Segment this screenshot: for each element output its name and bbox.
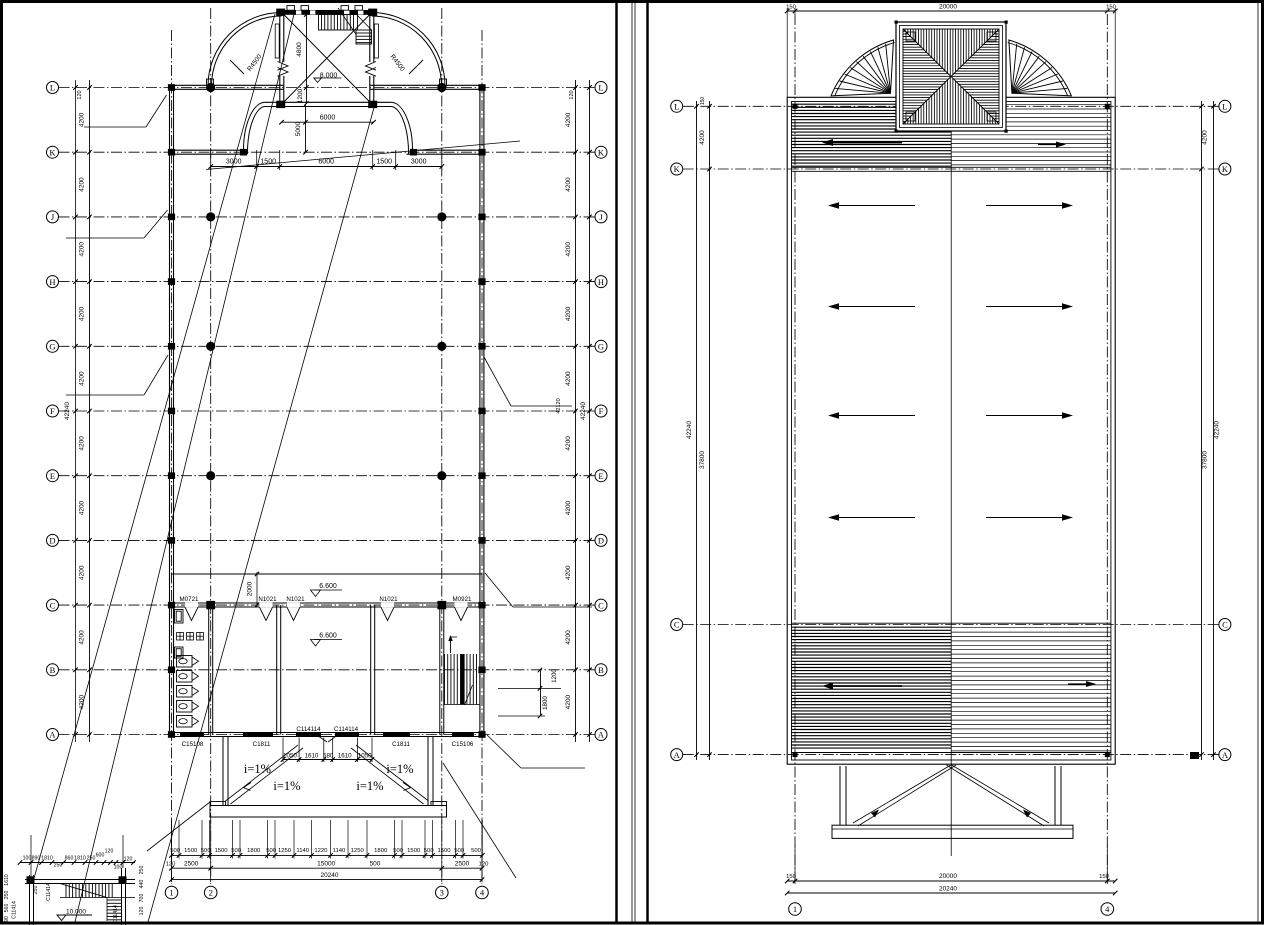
svg-text:37800: 37800	[699, 451, 706, 469]
svg-text:F: F	[599, 406, 604, 416]
svg-text:4200: 4200	[79, 565, 86, 580]
svg-text:4200: 4200	[565, 500, 572, 515]
svg-text:150: 150	[786, 5, 797, 11]
svg-text:1800: 1800	[542, 696, 549, 710]
svg-text:90: 90	[4, 916, 10, 922]
svg-text:500: 500	[424, 848, 435, 854]
svg-text:1800: 1800	[374, 848, 388, 854]
svg-text:580: 580	[323, 753, 334, 760]
svg-text:500: 500	[471, 848, 482, 854]
svg-text:M0721: M0721	[180, 596, 199, 603]
svg-text:120: 120	[139, 907, 145, 916]
svg-text:B: B	[598, 665, 604, 675]
svg-text:E: E	[598, 471, 603, 481]
svg-text:5000: 5000	[295, 121, 302, 136]
svg-text:4200: 4200	[565, 565, 572, 580]
svg-text:L: L	[50, 83, 55, 93]
svg-text:3: 3	[440, 888, 444, 898]
svg-text:250: 250	[54, 863, 63, 869]
svg-text:C1811: C1811	[253, 741, 271, 748]
svg-text:42240: 42240	[580, 402, 587, 420]
svg-text:500: 500	[454, 848, 465, 854]
svg-text:8.000: 8.000	[320, 73, 338, 80]
svg-text:100: 100	[23, 856, 32, 862]
svg-text:A: A	[598, 730, 605, 740]
svg-text:A: A	[1222, 750, 1229, 760]
svg-text:L: L	[674, 102, 679, 112]
svg-text:C114114: C114114	[296, 726, 321, 733]
svg-text:1250: 1250	[278, 848, 292, 854]
svg-text:560: 560	[4, 904, 10, 913]
svg-text:i=1%: i=1%	[244, 762, 271, 776]
svg-text:1500: 1500	[437, 848, 451, 854]
svg-text:440: 440	[139, 880, 145, 889]
svg-text:2500: 2500	[184, 861, 199, 868]
svg-text:120: 120	[124, 857, 133, 863]
svg-text:K: K	[674, 164, 681, 174]
svg-text:4200: 4200	[565, 436, 572, 451]
svg-text:4200: 4200	[565, 242, 572, 257]
svg-text:H: H	[598, 277, 604, 287]
svg-text:150: 150	[1106, 5, 1117, 11]
svg-text:2500: 2500	[455, 861, 470, 868]
svg-text:120: 120	[105, 849, 114, 855]
svg-text:120: 120	[166, 862, 177, 868]
svg-text:150: 150	[1099, 874, 1110, 880]
svg-text:K: K	[49, 147, 56, 157]
svg-text:1610: 1610	[4, 874, 10, 886]
svg-text:4200: 4200	[565, 695, 572, 710]
svg-text:500: 500	[370, 861, 381, 868]
svg-text:42240: 42240	[686, 421, 693, 439]
svg-text:C11414: C11414	[46, 883, 52, 901]
svg-text:120: 120	[479, 862, 490, 868]
svg-text:4200: 4200	[1202, 130, 1209, 145]
svg-text:A: A	[674, 750, 681, 760]
svg-text:4200: 4200	[565, 177, 572, 192]
svg-text:4: 4	[1105, 904, 1110, 914]
svg-text:4200: 4200	[79, 371, 86, 386]
svg-text:6.600: 6.600	[319, 633, 337, 640]
svg-text:4200: 4200	[565, 630, 572, 645]
svg-text:G: G	[49, 342, 55, 352]
svg-text:500: 500	[393, 848, 404, 854]
svg-text:1140: 1140	[333, 848, 346, 854]
svg-text:i=1%: i=1%	[356, 779, 383, 793]
svg-text:K: K	[1222, 164, 1229, 174]
svg-text:4800: 4800	[296, 42, 303, 57]
svg-text:860: 860	[65, 856, 74, 862]
svg-text:D: D	[598, 536, 604, 546]
svg-text:37800: 37800	[1202, 451, 1209, 469]
svg-text:A: A	[49, 730, 56, 740]
svg-text:20240: 20240	[939, 886, 957, 893]
svg-text:i=1%: i=1%	[386, 762, 413, 776]
svg-text:4200: 4200	[79, 112, 86, 127]
svg-text:4200: 4200	[79, 630, 86, 645]
svg-text:1500: 1500	[376, 159, 392, 166]
svg-text:3000: 3000	[411, 159, 427, 166]
svg-text:150: 150	[786, 874, 797, 880]
svg-text:500: 500	[231, 848, 242, 854]
svg-text:1800: 1800	[247, 848, 261, 854]
svg-text:890: 890	[32, 856, 41, 862]
svg-text:10.000: 10.000	[66, 909, 86, 916]
svg-text:1810: 1810	[74, 856, 86, 862]
svg-text:C: C	[50, 600, 56, 610]
svg-text:120: 120	[569, 90, 575, 99]
svg-text:D: D	[49, 536, 55, 546]
svg-text:20000: 20000	[939, 873, 957, 880]
svg-text:G: G	[598, 342, 604, 352]
svg-text:250: 250	[33, 886, 39, 895]
svg-text:C11414: C11414	[12, 901, 18, 919]
svg-text:4200: 4200	[79, 306, 86, 321]
svg-text:500: 500	[266, 848, 277, 854]
svg-text:500: 500	[201, 848, 212, 854]
svg-text:E: E	[50, 471, 55, 481]
svg-text:1200: 1200	[551, 669, 558, 683]
svg-text:1500: 1500	[184, 848, 198, 854]
svg-text:20000: 20000	[939, 4, 957, 11]
svg-text:120: 120	[77, 90, 83, 99]
svg-text:700: 700	[139, 894, 145, 903]
svg-text:C1811: C1811	[392, 741, 410, 748]
svg-text:C: C	[1222, 620, 1228, 630]
svg-text:4200: 4200	[699, 130, 706, 145]
svg-text:C15106: C15106	[452, 741, 474, 748]
svg-text:F: F	[50, 406, 55, 416]
svg-text:6000: 6000	[318, 159, 334, 166]
svg-text:1220: 1220	[314, 848, 328, 854]
svg-text:4200: 4200	[79, 177, 86, 192]
svg-text:2000: 2000	[247, 581, 254, 596]
svg-text:4200: 4200	[79, 436, 86, 451]
svg-text:C: C	[598, 600, 604, 610]
svg-text:B: B	[50, 665, 56, 675]
svg-text:4200: 4200	[565, 371, 572, 386]
svg-text:M0921: M0921	[453, 596, 472, 603]
svg-text:42240: 42240	[64, 402, 71, 420]
svg-text:C15108: C15108	[182, 741, 204, 748]
svg-text:C114114: C114114	[334, 726, 359, 733]
svg-text:1200: 1200	[297, 88, 304, 103]
svg-text:1: 1	[169, 888, 173, 898]
svg-text:2: 2	[209, 888, 213, 898]
svg-text:1: 1	[793, 904, 797, 914]
svg-text:150: 150	[700, 97, 706, 106]
svg-text:K: K	[598, 147, 605, 157]
svg-text:15000: 15000	[317, 861, 335, 868]
svg-text:1250: 1250	[351, 848, 365, 854]
svg-text:L: L	[598, 83, 603, 93]
svg-text:H: H	[49, 277, 55, 287]
svg-text:6.600: 6.600	[319, 583, 337, 590]
svg-text:1500: 1500	[407, 848, 421, 854]
svg-text:L: L	[1222, 102, 1227, 112]
svg-text:N1021: N1021	[258, 596, 277, 603]
svg-text:4200: 4200	[79, 242, 86, 257]
svg-text:1140: 1140	[296, 848, 309, 854]
svg-text:C: C	[674, 620, 680, 630]
svg-text:250: 250	[139, 866, 145, 875]
svg-text:i=1%: i=1%	[273, 779, 300, 793]
svg-text:600: 600	[96, 853, 105, 859]
svg-text:4200: 4200	[565, 306, 572, 321]
svg-text:N1021: N1021	[379, 596, 398, 603]
svg-text:6000: 6000	[320, 115, 336, 122]
svg-text:4200: 4200	[79, 500, 86, 515]
svg-text:250: 250	[4, 891, 10, 900]
svg-text:1610: 1610	[338, 753, 352, 760]
svg-text:250: 250	[87, 856, 96, 862]
svg-text:1810: 1810	[41, 856, 53, 862]
svg-text:N1021: N1021	[286, 596, 305, 603]
svg-text:4200: 4200	[565, 112, 572, 127]
svg-text:20240: 20240	[320, 872, 338, 879]
svg-text:C11414: C11414	[113, 905, 119, 923]
svg-text:1500: 1500	[214, 848, 228, 854]
svg-text:42240: 42240	[1214, 421, 1221, 439]
svg-text:1610: 1610	[305, 753, 319, 760]
